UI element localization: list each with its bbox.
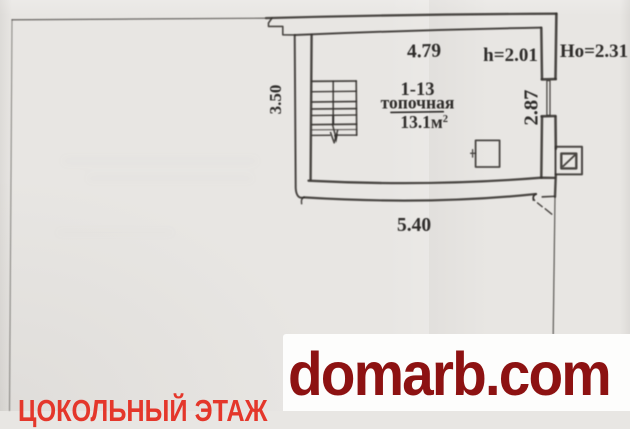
svg-text:h=2.01: h=2.01 [483, 45, 538, 66]
svg-text:13.1м2: 13.1м2 [400, 112, 448, 132]
svg-text:4.79: 4.79 [407, 41, 442, 63]
svg-text:5.40: 5.40 [397, 215, 431, 236]
svg-text:2.87: 2.87 [521, 90, 543, 126]
svg-text:топочная: топочная [381, 92, 455, 112]
svg-text:3.50: 3.50 [266, 85, 285, 115]
svg-text:Ho=2.31: Ho=2.31 [560, 41, 628, 62]
